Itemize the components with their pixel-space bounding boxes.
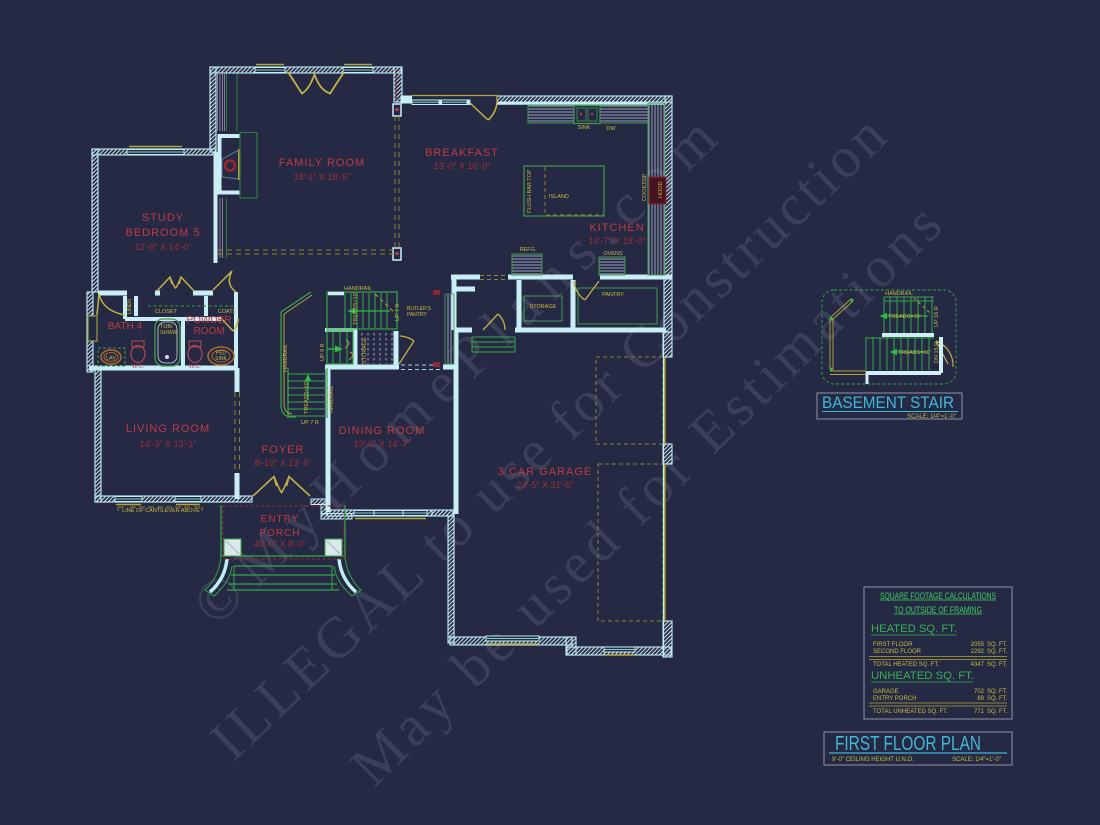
svg-text:BREAKFAST: BREAKFAST (425, 147, 499, 159)
svg-text:DINING ROOM: DINING ROOM (339, 425, 426, 437)
svg-text:FOYER: FOYER (262, 444, 305, 456)
svg-text:SINK: SINK (578, 125, 591, 131)
svg-text:COOKTOP: COOKTOP (642, 173, 648, 201)
svg-text:FIRST FLOOR: FIRST FLOOR (873, 642, 913, 648)
svg-text:LIVING ROOM: LIVING ROOM (126, 423, 210, 435)
svg-text:STORAGE: STORAGE (530, 304, 557, 310)
svg-text:2292: 2292 (971, 649, 985, 655)
svg-text:24'-5" X 31'-5": 24'-5" X 31'-5" (517, 480, 574, 490)
svg-text:W.C.: W.C. (132, 364, 144, 370)
svg-text:OVENS: OVENS (603, 251, 623, 257)
svg-text:SHWR.: SHWR. (160, 330, 179, 336)
svg-text:REFG.: REFG. (520, 247, 537, 253)
svg-text:SECOND FLOOR: SECOND FLOOR (873, 649, 922, 655)
svg-text:ROOM: ROOM (193, 326, 224, 337)
svg-text:SQ. FT.: SQ. FT. (987, 662, 1008, 668)
svg-text:14'-7" X 18'-0": 14'-7" X 18'-0" (589, 236, 646, 246)
svg-text:LAV: LAV (106, 356, 116, 362)
svg-text:UP 16 R: UP 16 R (934, 306, 940, 327)
svg-text:4347: 4347 (971, 662, 985, 668)
svg-text:UP 7 R: UP 7 R (395, 303, 401, 321)
svg-text:HANDRAIL: HANDRAIL (329, 385, 335, 413)
svg-text:FAMILY ROOM: FAMILY ROOM (279, 157, 365, 169)
svg-text:2055: 2055 (971, 642, 985, 648)
svg-text:702: 702 (974, 689, 985, 695)
svg-text:BEDROOM 5: BEDROOM 5 (125, 227, 200, 239)
svg-text:13'-0" X 14'-7": 13'-0" X 14'-7" (354, 439, 411, 449)
svg-text:KITCHEN: KITCHEN (589, 222, 644, 234)
svg-text:3 CAR GARAGE: 3 CAR GARAGE (498, 466, 593, 478)
svg-text:W.C.: W.C. (189, 364, 201, 370)
svg-text:HANDRAIL: HANDRAIL (885, 291, 913, 297)
svg-text:14'-3" X 13'-1": 14'-3" X 13'-1" (140, 439, 197, 449)
svg-text:PANTRY: PANTRY (602, 292, 624, 298)
svg-text:ISLAND: ISLAND (549, 194, 569, 200)
svg-text:SINK: SINK (215, 356, 227, 362)
svg-text:12'-0" X 14'-0": 12'-0" X 14'-0" (135, 242, 192, 252)
svg-text:PANTRY: PANTRY (407, 312, 427, 318)
svg-text:TO OUTSIDE OF FRAMING: TO OUTSIDE OF FRAMING (894, 605, 982, 615)
svg-text:BASEMENT STAIR: BASEMENT STAIR (822, 394, 954, 412)
svg-text:POWDER: POWDER (187, 315, 232, 326)
svg-text:ENTRY: ENTRY (261, 514, 300, 525)
svg-text:SQUARE FOOTAGE CALCULATIONS: SQUARE FOOTAGE CALCULATIONS (880, 591, 996, 601)
svg-text:SQ. FT.: SQ. FT. (987, 689, 1008, 695)
svg-text:TREADS=10': TREADS=10' (353, 292, 359, 325)
svg-text:SQ. FT.: SQ. FT. (987, 642, 1008, 648)
svg-text:STORAGE: STORAGE (362, 337, 368, 364)
svg-text:UP 7 R: UP 7 R (301, 420, 319, 426)
svg-text:UNHEATED SQ. FT.: UNHEATED SQ. FT. (871, 670, 974, 682)
svg-text:HOOD: HOOD (658, 181, 664, 198)
svg-text:SCALE: 1/4"=1'-0": SCALE: 1/4"=1'-0" (907, 414, 956, 420)
svg-text:TOTAL UNHEATED SQ. FT.: TOTAL UNHEATED SQ. FT. (873, 709, 948, 715)
svg-text:13'-0" X 16'-0": 13'-0" X 16'-0" (434, 161, 491, 171)
svg-text:CLOSET: CLOSET (155, 309, 178, 315)
svg-text:SQ. FT.: SQ. FT. (987, 709, 1008, 715)
svg-text:TOTAL HEATED SQ. FT.: TOTAL HEATED SQ. FT. (873, 662, 939, 668)
svg-text:9'-0" CEILING HEIGHT U.N.O.: 9'-0" CEILING HEIGHT U.N.O. (832, 757, 914, 763)
svg-text:FLUSH BAR TOP: FLUSH BAR TOP (527, 169, 533, 213)
svg-text:TREADS=10': TREADS=10' (898, 350, 931, 356)
svg-text:UP 9 R: UP 9 R (320, 343, 326, 361)
svg-text:PORCH: PORCH (259, 528, 300, 539)
svg-text:BATH 4: BATH 4 (108, 321, 143, 332)
svg-text:STUDY: STUDY (142, 212, 184, 224)
svg-text:HANDRAIL: HANDRAIL (283, 344, 289, 372)
svg-text:HEATED SQ. FT.: HEATED SQ. FT. (871, 623, 957, 635)
svg-text:SQ. FT.: SQ. FT. (987, 649, 1008, 655)
svg-text:TREADS=10': TREADS=10' (888, 314, 921, 320)
svg-text:69: 69 (977, 696, 984, 702)
svg-text:SCALE: 1/4"=1'-0": SCALE: 1/4"=1'-0" (952, 757, 1001, 763)
svg-text:ENTRY PORCH: ENTRY PORCH (873, 696, 916, 702)
svg-text:TREADS=10': TREADS=10' (304, 381, 310, 414)
svg-text:GARAGE: GARAGE (873, 689, 899, 695)
svg-text:LINEN: LINEN (127, 299, 133, 314)
svg-text:18'-1" X 18'-5": 18'-1" X 18'-5" (294, 172, 351, 182)
svg-text:771: 771 (974, 709, 985, 715)
svg-text:LINE OF CANTILEVER ABOVE: LINE OF CANTILEVER ABOVE (122, 508, 200, 514)
svg-text:DW: DW (606, 126, 616, 132)
svg-text:40'-0" X 8'-0": 40'-0" X 8'-0" (254, 539, 306, 549)
svg-text:SQ. FT.: SQ. FT. (987, 696, 1008, 702)
svg-text:8'-10" X 13'-5": 8'-10" X 13'-5" (255, 458, 312, 468)
svg-text:HANDRAIL: HANDRAIL (344, 286, 372, 292)
svg-text:FIRST FLOOR PLAN: FIRST FLOOR PLAN (835, 733, 981, 755)
svg-text:COATS: COATS (218, 309, 237, 315)
